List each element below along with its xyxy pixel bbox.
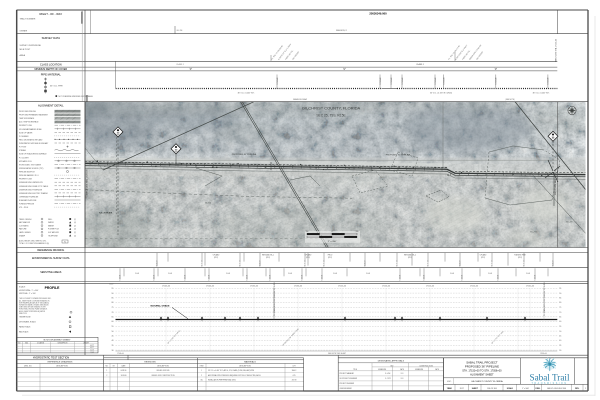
svg-text:04/11/16: 04/11/16 — [121, 370, 127, 372]
svg-text:PROPOSED 36" PIPELINE: PROPOSED 36" PIPELINE — [232, 154, 257, 156]
svg-text:50: 50 — [559, 331, 561, 333]
svg-text:ALIGNMENT SHEET: ALIGNMENT SHEET — [470, 374, 494, 377]
svg-text:WELL: WELL — [48, 219, 52, 221]
svg-text:PROJECT ENGINEER: PROJECT ENGINEER — [340, 383, 355, 385]
svg-text:45: 45 — [559, 336, 561, 338]
svg-text:AREA: AREA — [20, 54, 26, 57]
svg-text:40: 40 — [112, 340, 114, 342]
svg-text:(PFO): (PFO) — [518, 257, 523, 259]
svg-text:(PFO): (PFO) — [266, 257, 271, 259]
svg-text:2: 2 — [106, 375, 107, 377]
svg-text:VERTICAL: 1" = 100': VERTICAL: 1" = 100' — [19, 292, 36, 295]
svg-text:MILE POST: MILE POST — [20, 49, 31, 51]
svg-text:PROPOSED PIPELINE: PROPOSED PIPELINE — [19, 111, 36, 113]
svg-text:55: 55 — [112, 326, 114, 328]
svg-text:36" O.D. x 0.465" W.T.: 36" O.D. x 0.465" W.T. — [238, 92, 255, 94]
svg-text:DESCRIPTION: DESCRIPTION — [157, 365, 169, 367]
svg-text:30: 30 — [112, 350, 114, 352]
svg-text:35: 35 — [112, 345, 114, 347]
svg-text:DESCRIPTION: DESCRIPTION — [58, 343, 68, 345]
svg-text:PROFILE: PROFILE — [45, 286, 60, 290]
svg-text:4.25: 4.25 — [293, 375, 296, 377]
svg-text:1" = 200': 1" = 200' — [328, 241, 337, 243]
svg-text:REVISIONS: REVISIONS — [144, 361, 156, 363]
svg-text:17115+00: 17115+00 — [426, 286, 434, 288]
svg-text:2016: 2016 — [401, 373, 404, 375]
svg-text:17145+00: 17145+00 — [380, 77, 382, 84]
svg-text:RIGHT - OF - WAY: RIGHT - OF - WAY — [39, 12, 62, 16]
svg-text:SURVEY DATA: SURVEY DATA — [42, 36, 61, 40]
svg-text:17130+00: 17130+00 — [294, 286, 302, 288]
svg-text:CLASS LOCATION: CLASS LOCATION — [40, 63, 62, 66]
svg-text:DWG. NO.: DWG. NO. — [24, 365, 33, 367]
svg-text:YEAR: YEAR — [447, 387, 453, 390]
svg-text:POWER POLE: POWER POLE — [48, 229, 59, 231]
svg-text:257.98: 257.98 — [292, 380, 297, 382]
svg-text:SEC 25, T9S, R15E: SEC 25, T9S, R15E — [316, 113, 346, 117]
svg-text:ISSUED FOR CONSTRUCTION: ISSUED FOR CONSTRUCTION — [151, 375, 175, 377]
svg-text:17125+00: 17125+00 — [338, 286, 346, 288]
svg-text:TIMBER RIDGE: TIMBER RIDGE — [19, 317, 31, 319]
svg-text:70: 70 — [559, 312, 561, 314]
svg-text:90: 90 — [559, 293, 561, 295]
svg-text:FOREIGN PIPELINE: FOREIGN PIPELINE — [19, 204, 34, 206]
svg-text:95: 95 — [559, 288, 561, 290]
svg-text:S-GIL-04: S-GIL-04 — [535, 275, 537, 281]
svg-text:25030349.000: 25030349.000 — [369, 12, 387, 16]
svg-text:MATCHLINE STA. 17106+00: MATCHLINE STA. 17106+00 — [554, 168, 557, 195]
svg-text:0: 0 — [332, 231, 333, 233]
svg-text:(PFO): (PFO) — [481, 257, 486, 259]
svg-text:SEE NOTE THIS SHEET: SEE NOTE THIS SHEET — [328, 353, 346, 355]
svg-text:D. ORTIZ: D. ORTIZ — [385, 378, 391, 380]
svg-text:TRANSMISSION: TRANSMISSION — [531, 382, 567, 385]
svg-text:50: 50 — [112, 331, 114, 333]
svg-text:Sabal Trail: Sabal Trail — [529, 373, 570, 383]
svg-text:GIL-706: GIL-706 — [177, 30, 183, 32]
svg-text:85: 85 — [112, 298, 114, 300]
svg-text:36" O.D. x 0.720" W.T. (HDD): 36" O.D. x 0.720" W.T. (HDD) — [430, 92, 452, 94]
svg-text:160: 160 — [552, 137, 555, 139]
svg-text:TELEPHONE: TELEPHONE — [48, 235, 58, 237]
svg-text:S-GIL-04: S-GIL-04 — [302, 275, 304, 281]
svg-text:NATURAL GRADE: NATURAL GRADE — [151, 305, 170, 308]
svg-text:GIL-719: GIL-719 — [530, 232, 537, 234]
svg-text:ISSUED FOR BID: ISSUED FOR BID — [157, 370, 171, 372]
svg-text:REV.: REV. — [575, 388, 580, 390]
svg-text:CHIEF ENGINEER: CHIEF ENGINEER — [340, 388, 352, 390]
svg-text:GILCHRIST COUNTY FLORIDA: GILCHRIST COUNTY FLORIDA — [471, 380, 503, 383]
svg-text:80: 80 — [559, 302, 561, 304]
svg-text:OWNER: OWNER — [20, 30, 28, 32]
svg-text:60: 60 — [559, 321, 561, 323]
svg-text:200: 200 — [306, 231, 309, 233]
svg-text:1: 1 — [106, 370, 107, 372]
svg-text:30: 30 — [559, 350, 561, 352]
svg-text:17145+00: 17145+00 — [162, 286, 170, 288]
svg-text:S-GIL-04: S-GIL-04 — [270, 275, 272, 281]
svg-text:60: 60 — [112, 321, 114, 323]
svg-text:DESCRIPTION: DESCRIPTION — [56, 365, 68, 367]
svg-text:S-GIL-04: S-GIL-04 — [154, 275, 156, 281]
svg-text:70: 70 — [112, 312, 114, 314]
svg-text:17145+00: 17145+00 — [548, 77, 550, 84]
svg-text:200: 200 — [356, 231, 359, 233]
svg-text:17099+00: 17099+00 — [540, 353, 547, 355]
svg-text:35: 35 — [559, 345, 561, 347]
svg-text:MATCHLINE STA. 17153+00: MATCHLINE STA. 17153+00 — [554, 39, 557, 62]
svg-text:CLASS 1: CLASS 1 — [176, 63, 184, 66]
svg-text:BY: BY — [113, 365, 115, 367]
svg-text:PROPOSED 36" PIPELINE: PROPOSED 36" PIPELINE — [465, 365, 499, 369]
svg-text:36" O.D. PIPE: 36" O.D. PIPE — [50, 85, 63, 87]
svg-text:(SEE NOTE): (SEE NOTE) — [505, 99, 515, 101]
svg-text:PI. NUMBER: PI. NUMBER — [19, 136, 29, 138]
svg-text:SENSITIVE AREAS: SENSITIVE AREAS — [40, 271, 62, 274]
svg-text:MATCHLINE STA. 17153+00: MATCHLINE STA. 17153+00 — [86, 168, 89, 195]
svg-text:S-GIL-04: S-GIL-04 — [462, 275, 464, 281]
svg-text:1: 1 — [585, 388, 586, 390]
svg-text:17110+00: 17110+00 — [470, 286, 478, 288]
svg-text:DESIGNATED APPROVALS: DESIGNATED APPROVALS — [378, 360, 405, 363]
svg-text:17145+00: 17145+00 — [496, 77, 498, 84]
svg-text:N.E. 70TH AVE.: N.E. 70TH AVE. — [99, 211, 113, 214]
svg-text:95: 95 — [112, 288, 114, 290]
svg-text:2: 2 — [201, 375, 202, 377]
svg-text:65: 65 — [112, 317, 114, 319]
svg-text:MINIMUM DEPTH OF COVER: MINIMUM DEPTH OF COVER — [34, 68, 67, 71]
svg-text:36" O.D. x 0.465" W.T.: 36" O.D. x 0.465" W.T. — [533, 92, 550, 94]
svg-text:2017: 2017 — [460, 388, 464, 390]
svg-text:PROPERTY LINE: PROPERTY LINE — [19, 125, 32, 127]
svg-text:S-GIL-04: S-GIL-04 — [498, 275, 500, 281]
svg-text:55: 55 — [559, 326, 561, 328]
svg-text:PROPOSED 36" PIPELINE: PROPOSED 36" PIPELINE — [386, 154, 411, 156]
svg-text:S-GIL-04: S-GIL-04 — [247, 275, 249, 281]
svg-text:S-GIL-04: S-GIL-04 — [120, 275, 122, 281]
svg-text:HYDROSTATIC TEST SECTION: HYDROSTATIC TEST SECTION — [33, 356, 70, 359]
svg-text:GIL-723: GIL-723 — [566, 222, 573, 224]
svg-text:17120+00: 17120+00 — [382, 286, 390, 288]
svg-text:SR. PROJECT ENGINEER: SR. PROJECT ENGINEER — [340, 378, 357, 380]
svg-text:65: 65 — [559, 317, 561, 319]
svg-text:(PFO): (PFO) — [408, 257, 413, 259]
svg-text:TREES / BRUSH: TREES / BRUSH — [19, 219, 32, 221]
svg-text:GILCHRIST COUNTY, FLORIDA: GILCHRIST COUNTY, FLORIDA — [302, 105, 361, 110]
svg-text:CLASS 1: CLASS 1 — [416, 63, 424, 66]
svg-text:LOC.: LOC. — [447, 381, 452, 383]
svg-text:306 OF 306: 306 OF 306 — [487, 388, 497, 390]
svg-text:S-GIL-04: S-GIL-04 — [322, 275, 324, 281]
svg-text:TITLE: TITLE — [353, 369, 357, 371]
svg-text:160: 160 — [175, 149, 178, 151]
svg-text:17145+00: 17145+00 — [435, 77, 437, 84]
svg-text:PI. CULVERT: PI. CULVERT — [19, 157, 29, 159]
svg-text:(PFO): (PFO) — [214, 257, 219, 259]
svg-text:160: 160 — [117, 133, 120, 135]
svg-text:10/19/16: 10/19/16 — [121, 375, 127, 377]
svg-text:DWG.: DWG. — [536, 388, 541, 390]
svg-text:DESCRIPTION: DESCRIPTION — [239, 365, 251, 367]
svg-text:DIRECTION: DIRECTION — [19, 313, 27, 315]
svg-text:17145+00: 17145+00 — [391, 77, 393, 84]
svg-text:UNDERGROUND POWERLINE: UNDERGROUND POWERLINE — [19, 189, 42, 191]
svg-text:75: 75 — [559, 307, 561, 309]
svg-text:17145+00: 17145+00 — [277, 77, 279, 84]
svg-text:SCALE:: SCALE: — [19, 286, 26, 289]
svg-text:45: 45 — [112, 336, 114, 338]
svg-text:STA. 17153+00 TO STA. 17056+00: STA. 17153+00 TO STA. 17056+00 — [462, 370, 502, 373]
svg-text:REFERENCE DRAWING: REFERENCE DRAWING — [37, 249, 64, 252]
svg-text:S-GIL-04: S-GIL-04 — [185, 275, 187, 281]
svg-text:S-GIL-04: S-GIL-04 — [424, 275, 426, 281]
svg-text:PI. POINT: PI. POINT — [19, 147, 26, 149]
svg-text:17146+00: 17146+00 — [117, 353, 124, 355]
svg-text:LENGTH: LENGTH — [83, 343, 89, 345]
svg-text:1946.5': 1946.5' — [292, 370, 298, 372]
svg-text:REFERENCE DRAWINGS: REFERENCE DRAWINGS — [48, 360, 73, 363]
svg-text:SCALE: SCALE — [507, 387, 514, 390]
svg-text:2016: 2016 — [401, 378, 404, 380]
svg-text:TRACT NUMBER: TRACT NUMBER — [20, 17, 36, 20]
svg-text:17140+00: 17140+00 — [206, 286, 214, 288]
svg-text:ALIGNMENT DETAIL: ALIGNMENT DETAIL — [38, 104, 64, 108]
svg-text:1" = 500': 1" = 500' — [522, 388, 530, 390]
svg-text:GIL: GIL — [200, 380, 203, 382]
svg-text:17145+00: 17145+00 — [444, 77, 446, 84]
svg-text:17145+00: 17145+00 — [402, 77, 404, 84]
svg-text:P.I. 17101+22.05 PROPOSED 36": P.I. 17101+22.05 PROPOSED 36" PIPELINE — [544, 281, 546, 316]
svg-text:PIPE MATERIAL: PIPE MATERIAL — [41, 72, 62, 76]
svg-text:SHEET: SHEET — [472, 388, 479, 390]
svg-text:GIL-713: GIL-713 — [205, 203, 211, 205]
svg-text:GED-PL-SS-10167-306: GED-PL-SS-10167-306 — [547, 388, 566, 390]
svg-text:HORIZONTAL: 1" = 500': HORIZONTAL: 1" = 500' — [19, 289, 39, 292]
svg-text:SURVEY CENTERLINE: SURVEY CENTERLINE — [20, 45, 42, 47]
svg-text:17135+00: 17135+00 — [250, 286, 258, 288]
svg-text:P.I. 17128+60.95 PROPOSED 36": P.I. 17128+60.95 PROPOSED 36" PIPELINE — [274, 281, 276, 316]
svg-text:ENVIRONMENTAL SURVEY DATA: ENVIRONMENTAL SURVEY DATA — [32, 257, 70, 260]
svg-text:SANDERS, R: SANDERS, R — [336, 29, 348, 32]
svg-text:(PFO): (PFO) — [306, 257, 311, 259]
svg-text:17101+00: 17101+00 — [526, 286, 534, 288]
svg-text:UTIL - POLE: UTIL - POLE — [19, 207, 28, 209]
svg-text:(PFO): (PFO) — [328, 257, 333, 259]
svg-text:PIPELINE MILEPOST: PIPELINE MILEPOST — [19, 172, 35, 174]
svg-text:90: 90 — [112, 293, 114, 295]
svg-text:MATERIALS: MATERIALS — [244, 360, 256, 363]
svg-text:85: 85 — [559, 298, 561, 300]
svg-text:S-GIL-04: S-GIL-04 — [400, 275, 402, 281]
svg-text:1: 1 — [201, 370, 202, 372]
svg-text:40: 40 — [559, 340, 561, 342]
svg-text:PROPERTY LINE: PROPERTY LINE — [19, 179, 32, 181]
svg-text:75: 75 — [112, 307, 114, 309]
svg-text:80: 80 — [112, 302, 114, 304]
svg-text:S-GIL-04: S-GIL-04 — [209, 275, 211, 281]
